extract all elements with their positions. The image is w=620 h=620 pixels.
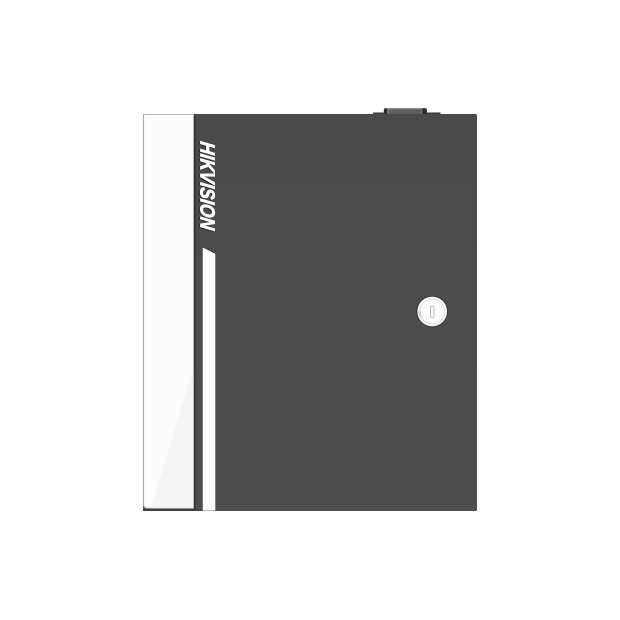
svg-text:HIKVISION: HIKVISION bbox=[196, 140, 219, 232]
